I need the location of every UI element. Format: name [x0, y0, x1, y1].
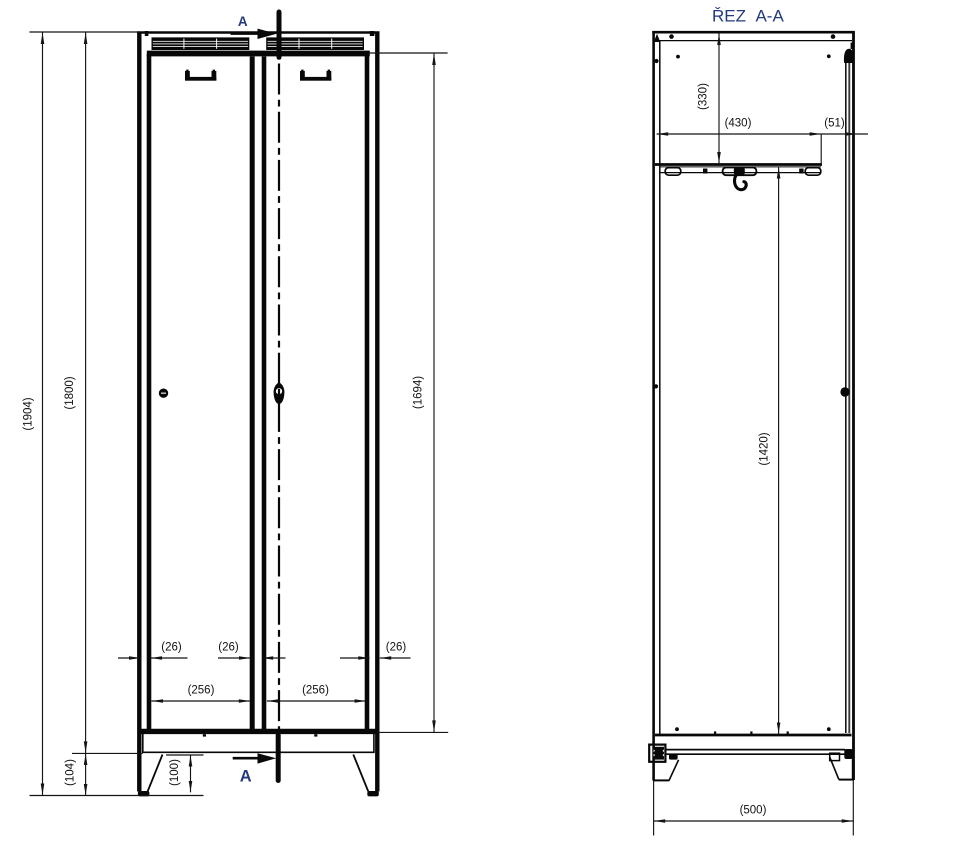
- svg-text:A: A: [240, 767, 252, 785]
- svg-text:(1800): (1800): [64, 376, 76, 409]
- svg-text:(1420): (1420): [759, 432, 771, 465]
- svg-text:(26): (26): [386, 642, 407, 654]
- svg-text:(1904): (1904): [23, 397, 35, 430]
- svg-text:(26): (26): [218, 642, 239, 654]
- svg-text:(51): (51): [824, 118, 845, 130]
- svg-text:(500): (500): [740, 805, 767, 817]
- svg-text:(430): (430): [725, 118, 752, 130]
- svg-text:(1694): (1694): [413, 376, 425, 409]
- svg-text:(100): (100): [169, 759, 181, 786]
- svg-text:(256): (256): [188, 685, 215, 697]
- svg-text:ŘEZ A-A: ŘEZ A-A: [712, 7, 784, 26]
- svg-text:(26): (26): [161, 642, 182, 654]
- svg-text:(256): (256): [302, 685, 329, 697]
- svg-text:A: A: [238, 14, 248, 29]
- svg-text:(330): (330): [698, 83, 710, 110]
- svg-text:(104): (104): [65, 759, 77, 786]
